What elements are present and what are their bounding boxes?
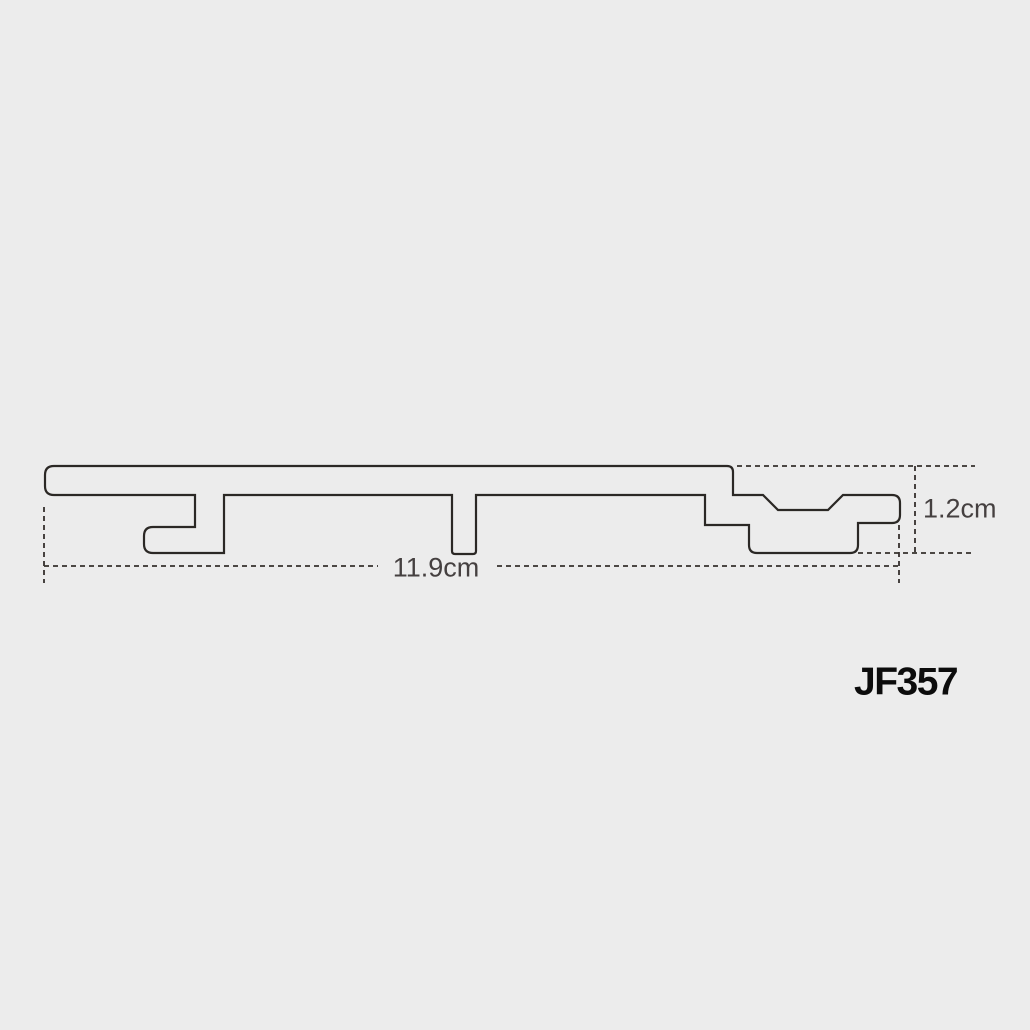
width-dimension-label: 11.9cm (393, 555, 480, 582)
profile-drawing (0, 0, 1030, 1030)
profile-outline (45, 466, 900, 554)
diagram-canvas: 11.9cm 1.2cm JF357 (0, 0, 1030, 1030)
height-dimension-label: 1.2cm (923, 496, 997, 523)
product-code-label: JF357 (854, 663, 957, 702)
